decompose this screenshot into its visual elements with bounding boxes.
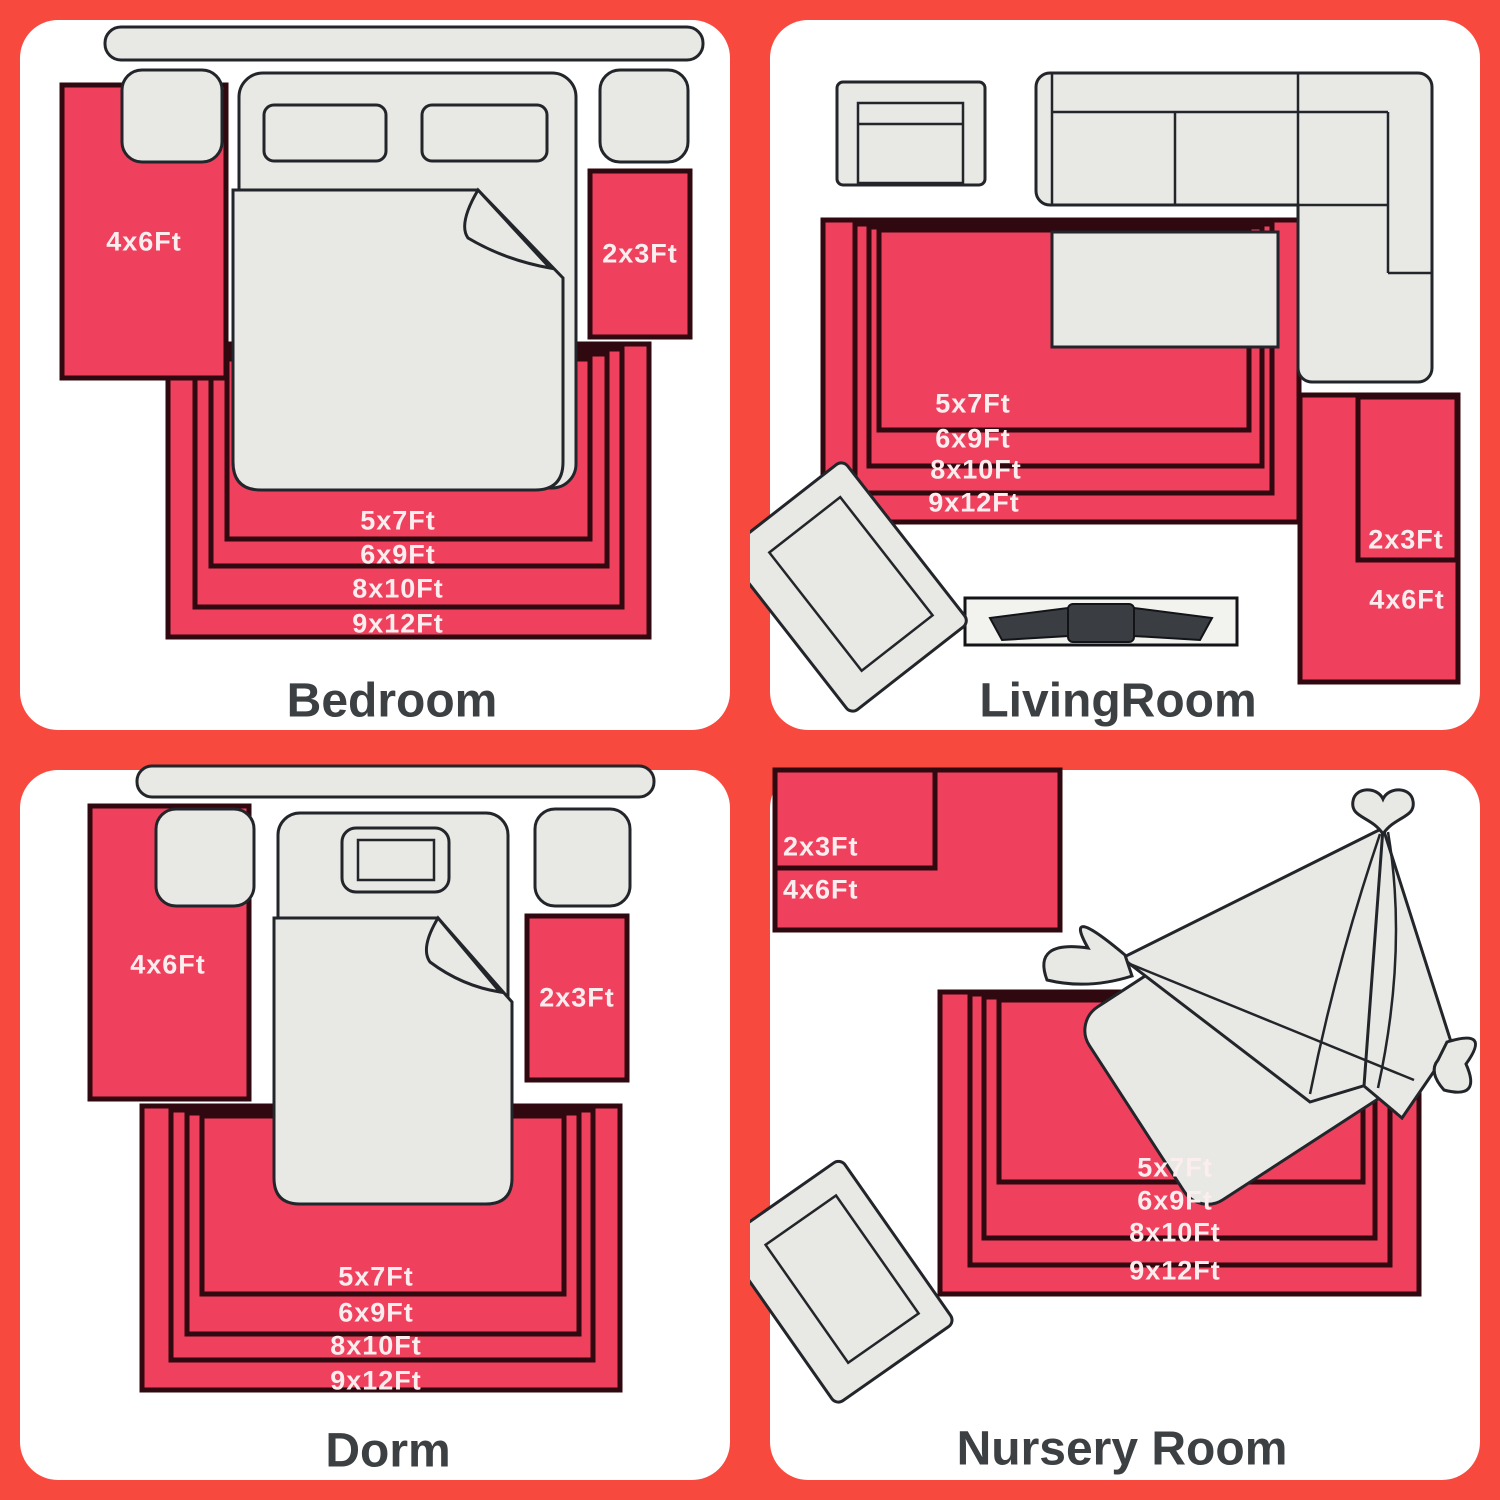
panel-title: Dorm xyxy=(325,1424,450,1479)
nightstand-left xyxy=(122,70,222,162)
panel-dorm: 4x6Ft 2x3Ft 5x7Ft 6x9Ft 8x10Ft 9x12Ft Do… xyxy=(0,750,750,1500)
panel-bedroom: 4x6Ft 2x3Ft 5x7Ft 6x9Ft 8x10Ft 9x12Ft Be… xyxy=(0,0,750,750)
panel-title: Bedroom xyxy=(287,674,498,729)
rug-size-label: 4x6Ft xyxy=(106,227,182,258)
rug-size-label: 8x10Ft xyxy=(1129,1218,1221,1249)
heart-knot xyxy=(1353,790,1414,834)
pillow-right xyxy=(422,105,547,161)
panel-title: LivingRoom xyxy=(979,674,1256,729)
blanket xyxy=(274,918,512,1204)
rug-size-label: 2x3Ft xyxy=(539,983,615,1014)
rug-size-label: 8x10Ft xyxy=(330,1331,422,1362)
armchair xyxy=(837,82,985,185)
headboard xyxy=(105,27,703,60)
rug-size-label: 6x9Ft xyxy=(1137,1186,1213,1217)
nightstand-right xyxy=(600,70,688,162)
headboard xyxy=(137,766,654,797)
nightstand-left xyxy=(156,809,254,906)
nightstand-right xyxy=(535,809,630,906)
canopy-wing-left xyxy=(1044,927,1132,985)
rug-size-label: 6x9Ft xyxy=(338,1298,414,1329)
panel-nursery: 2x3Ft 4x6Ft 5x7Ft 6x9Ft 8x10Ft 9x12Ft Nu… xyxy=(750,750,1500,1500)
tv-console xyxy=(965,598,1237,645)
rug-size-label: 5x7Ft xyxy=(1137,1153,1213,1184)
panel-livingroom: 5x7Ft 6x9Ft 8x10Ft 9x12Ft 2x3Ft 4x6Ft Li… xyxy=(750,0,1500,750)
rug-size-label: 2x3Ft xyxy=(1368,525,1444,556)
rug-size-label: 6x9Ft xyxy=(935,424,1011,455)
panel-title: Nursery Room xyxy=(957,1422,1288,1477)
pillow-left xyxy=(264,105,386,161)
single-bed xyxy=(274,813,512,1204)
rug-size-label: 9x12Ft xyxy=(1129,1256,1221,1287)
rug-size-label: 9x12Ft xyxy=(330,1366,422,1397)
rug-size-label: 4x6Ft xyxy=(783,875,859,906)
rug-size-label: 6x9Ft xyxy=(360,540,436,571)
rug-size-label: 4x6Ft xyxy=(130,950,206,981)
rug-size-label: 2x3Ft xyxy=(602,239,678,270)
rug-size-label: 8x10Ft xyxy=(930,455,1022,486)
rug-size-label: 8x10Ft xyxy=(352,574,444,605)
tv-center xyxy=(1068,604,1134,642)
coffee-table xyxy=(1052,232,1278,347)
rug-size-guide: 4x6Ft 2x3Ft 5x7Ft 6x9Ft 8x10Ft 9x12Ft Be… xyxy=(0,0,1500,1500)
livingroom-illustration xyxy=(750,0,1500,750)
rug-size-label: 9x12Ft xyxy=(352,609,444,640)
accent-rug xyxy=(750,1158,955,1405)
rug-size-label: 5x7Ft xyxy=(935,389,1011,420)
rug-size-label: 5x7Ft xyxy=(360,506,436,537)
rug-size-label: 2x3Ft xyxy=(783,832,859,863)
rug-size-label: 9x12Ft xyxy=(928,488,1020,519)
rug-size-label: 4x6Ft xyxy=(1369,585,1445,616)
nursery-illustration xyxy=(750,750,1500,1500)
rug-size-label: 5x7Ft xyxy=(338,1262,414,1293)
double-bed xyxy=(233,73,576,490)
